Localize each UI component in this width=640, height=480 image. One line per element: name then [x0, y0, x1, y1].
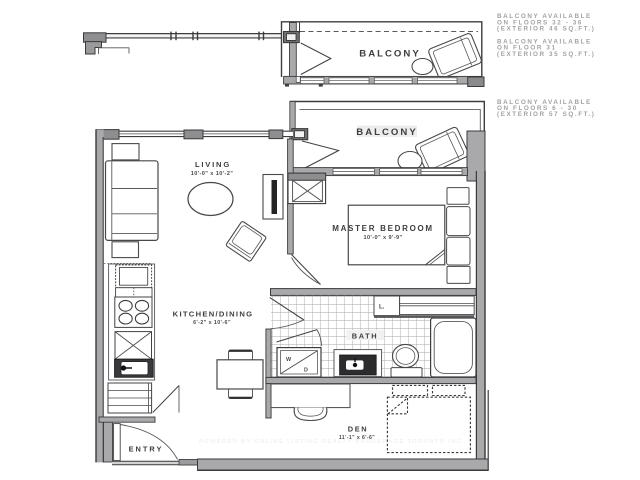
svg-text:(EXTERIOR 57 SQ.FT.): (EXTERIOR 57 SQ.FT.): [497, 111, 595, 118]
svg-text:BATH: BATH: [352, 331, 378, 340]
svg-text:DEN: DEN: [348, 424, 368, 433]
svg-text:(EXTERIOR 35 SQ.FT.): (EXTERIOR 35 SQ.FT.): [497, 51, 595, 58]
svg-text:L.: L.: [379, 305, 385, 311]
svg-text:ENTRY: ENTRY: [129, 445, 164, 454]
svg-text:BALCONY: BALCONY: [359, 49, 420, 60]
svg-text:D: D: [304, 368, 308, 374]
svg-text:(EXTERIOR 46 SQ.FT.): (EXTERIOR 46 SQ.FT.): [497, 26, 595, 33]
svg-text:BALCONY: BALCONY: [356, 127, 417, 138]
svg-text:LIVING: LIVING: [195, 160, 231, 169]
svg-text:10'-0" x 10'-2": 10'-0" x 10'-2": [191, 171, 234, 177]
svg-text:KITCHEN/DINING: KITCHEN/DINING: [173, 310, 254, 319]
svg-text:6'-2" x 10'-6": 6'-2" x 10'-6": [193, 320, 231, 326]
svg-text:MASTER BEDROOM: MASTER BEDROOM: [332, 224, 434, 233]
svg-text:10'-0" x 9'-9": 10'-0" x 9'-9": [363, 235, 402, 241]
svg-text:POWERED BY ONLINE LISTING REAL: POWERED BY ONLINE LISTING REALTY BROKERA…: [199, 439, 462, 445]
